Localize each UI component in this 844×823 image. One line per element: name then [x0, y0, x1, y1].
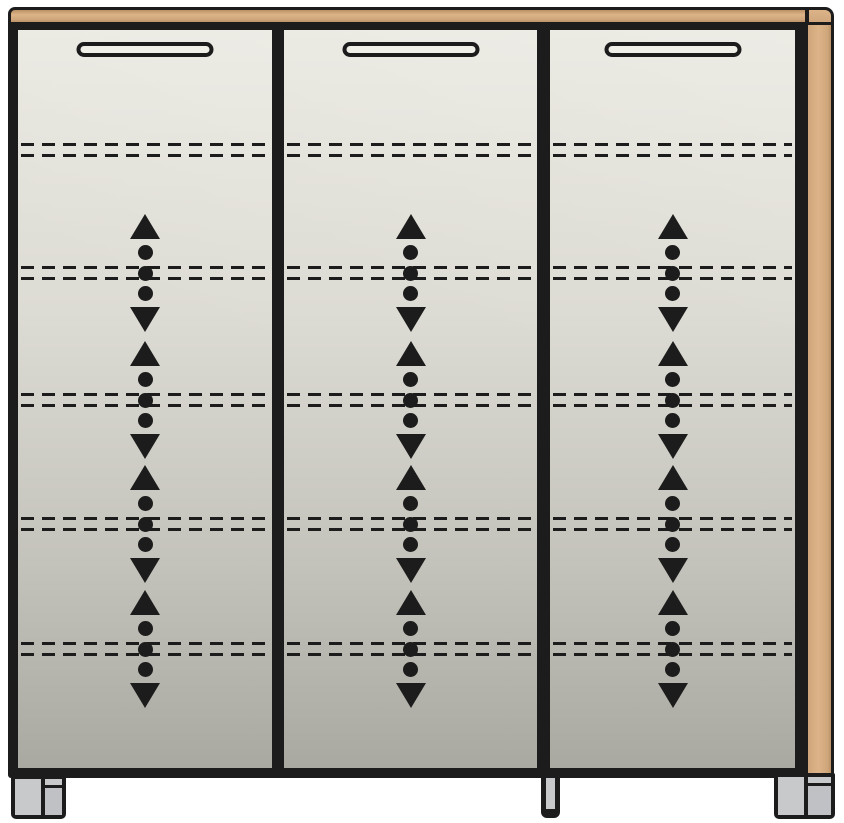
arrow-up-icon: [130, 465, 160, 490]
arrow-up-icon: [396, 590, 426, 615]
cabinet-door-3[interactable]: [550, 30, 795, 768]
shelf-adjust-indicator: [395, 590, 427, 708]
foot-plate: [15, 779, 41, 815]
shelf-pin-dot-icon: [665, 537, 680, 552]
shelf-pin-dot-icon: [403, 393, 418, 408]
shelf-pin-dot-icon: [665, 621, 680, 636]
shelf-position-dashed-line: [553, 154, 792, 157]
cabinet-door-2[interactable]: [284, 30, 537, 768]
foot-stem: [45, 779, 62, 815]
arrow-down-icon: [130, 307, 160, 332]
cabinet-body: [8, 22, 805, 778]
arrow-up-icon: [130, 214, 160, 239]
shelf-adjust-indicator: [395, 214, 427, 332]
shelf-adjust-indicator: [129, 465, 161, 583]
shelf-pin-dot-icon: [138, 286, 153, 301]
shelf-pin-dot-icon: [403, 372, 418, 387]
shelf-adjust-indicator: [657, 465, 689, 583]
shelf-position-dashed-line: [287, 154, 534, 157]
cabinet-door-1[interactable]: [18, 30, 272, 768]
arrow-up-icon: [658, 341, 688, 366]
shelf-pin-dot-icon: [403, 621, 418, 636]
shelf-pin-dot-icon: [403, 662, 418, 677]
shelf-pin-dot-icon: [403, 642, 418, 657]
shelf-pin-dot-icon: [138, 537, 153, 552]
shelf-position-dashed-line: [287, 143, 534, 146]
shelf-pin-dot-icon: [138, 413, 153, 428]
arrow-up-icon: [658, 465, 688, 490]
shelf-pin-dot-icon: [403, 286, 418, 301]
shelf-adjust-indicator: [129, 341, 161, 459]
arrow-down-icon: [396, 683, 426, 708]
shelf-pin-dot-icon: [665, 517, 680, 532]
shelf-pin-dot-icon: [138, 372, 153, 387]
foot-lip: [808, 777, 831, 783]
arrow-down-icon: [658, 434, 688, 459]
arrow-down-icon: [396, 434, 426, 459]
arrow-up-icon: [396, 341, 426, 366]
shelf-pin-dot-icon: [665, 245, 680, 260]
cabinet-foot-right: [774, 773, 835, 819]
arrow-up-icon: [658, 214, 688, 239]
arrow-up-icon: [396, 465, 426, 490]
shelf-pin-dot-icon: [665, 372, 680, 387]
arrow-down-icon: [130, 434, 160, 459]
shelf-adjust-indicator: [395, 465, 427, 583]
cabinet-foot-left: [11, 775, 66, 819]
shelf-pin-dot-icon: [403, 517, 418, 532]
arrow-down-icon: [396, 307, 426, 332]
shelf-pin-dot-icon: [665, 266, 680, 281]
shelf-position-dashed-line: [21, 143, 269, 146]
shelf-pin-dot-icon: [403, 537, 418, 552]
cabinet-side-panel-right: [805, 22, 834, 776]
door-handle-recess[interactable]: [342, 42, 479, 57]
arrow-down-icon: [130, 683, 160, 708]
shelf-pin-dot-icon: [138, 517, 153, 532]
shelf-pin-dot-icon: [138, 393, 153, 408]
shelf-pin-dot-icon: [665, 286, 680, 301]
foot-lip: [45, 779, 62, 785]
shelf-adjust-indicator: [395, 341, 427, 459]
shelf-pin-dot-icon: [665, 642, 680, 657]
foot-plate: [778, 777, 804, 815]
arrow-up-icon: [396, 214, 426, 239]
shelf-adjust-indicator: [657, 214, 689, 332]
shelf-pin-dot-icon: [403, 413, 418, 428]
shelf-pin-dot-icon: [403, 496, 418, 511]
shelf-position-dashed-line: [21, 154, 269, 157]
arrow-down-icon: [130, 558, 160, 583]
arrow-down-icon: [658, 683, 688, 708]
shelf-pin-dot-icon: [665, 662, 680, 677]
foot-stem-body: [808, 786, 831, 815]
shelf-pin-dot-icon: [665, 496, 680, 511]
shelf-pin-dot-icon: [665, 393, 680, 408]
shelf-adjust-indicator: [657, 590, 689, 708]
arrow-up-icon: [130, 341, 160, 366]
shelf-pin-dot-icon: [138, 245, 153, 260]
shelf-pin-dot-icon: [138, 496, 153, 511]
arrow-up-icon: [658, 590, 688, 615]
foot-stem: [808, 777, 831, 815]
shelf-pin-dot-icon: [138, 642, 153, 657]
arrow-up-icon: [130, 590, 160, 615]
shelf-position-dashed-line: [553, 143, 792, 146]
cabinet-front-view-diagram: [0, 0, 844, 823]
shelf-pin-dot-icon: [665, 413, 680, 428]
door-handle-recess[interactable]: [77, 42, 214, 57]
arrow-down-icon: [658, 558, 688, 583]
shelf-pin-dot-icon: [403, 245, 418, 260]
shelf-pin-dot-icon: [138, 662, 153, 677]
arrow-down-icon: [658, 307, 688, 332]
shelf-pin-dot-icon: [138, 266, 153, 281]
door-handle-recess[interactable]: [604, 42, 741, 57]
shelf-adjust-indicator: [129, 590, 161, 708]
shelf-pin-dot-icon: [403, 266, 418, 281]
foot-stem-body: [45, 788, 62, 815]
shelf-adjust-indicator: [657, 341, 689, 459]
arrow-down-icon: [396, 558, 426, 583]
shelf-pin-dot-icon: [138, 621, 153, 636]
foot-stem-body: [546, 778, 555, 809]
shelf-adjust-indicator: [129, 214, 161, 332]
cabinet-foot-center: [541, 775, 560, 818]
